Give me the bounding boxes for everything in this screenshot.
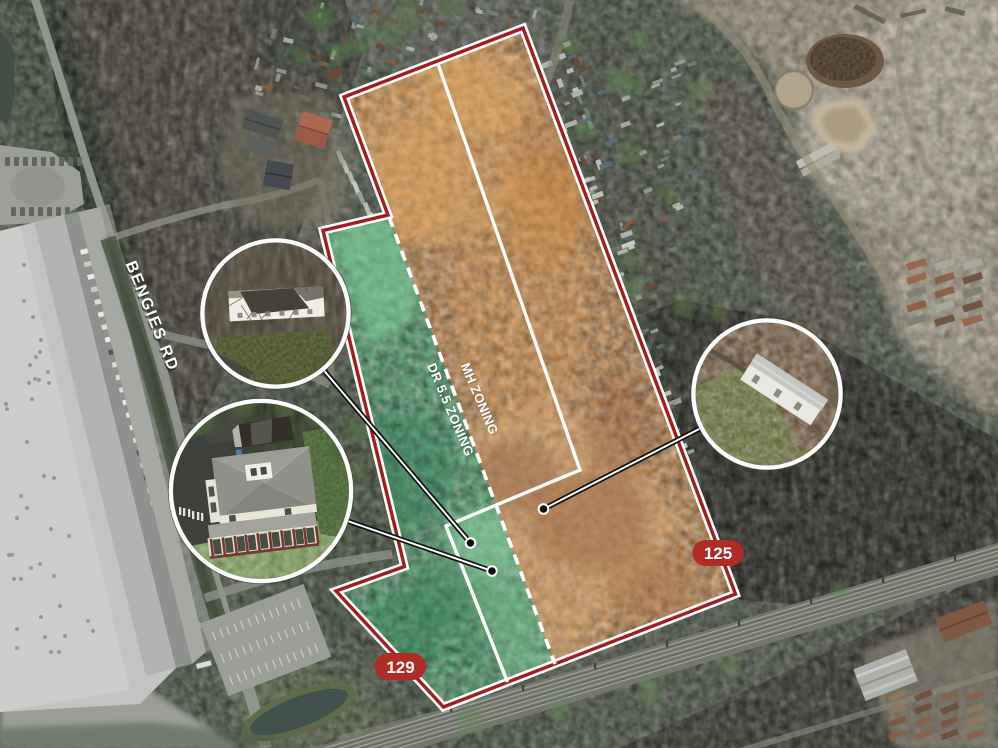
svg-text:125: 125 xyxy=(704,544,732,563)
svg-text:129: 129 xyxy=(386,658,414,677)
